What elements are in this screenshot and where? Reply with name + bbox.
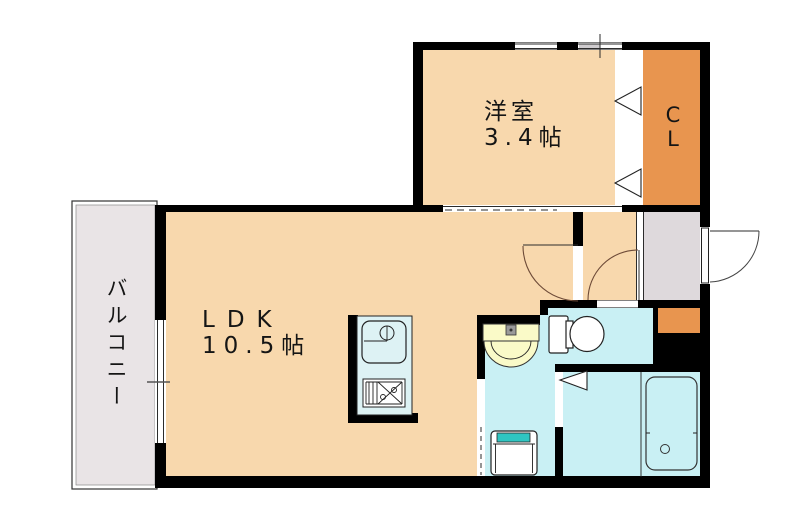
south-wall xyxy=(155,476,710,488)
entrance-door-panel xyxy=(702,228,709,283)
floorplan: 洋室 3.4帖 LDK 10.5帖 C L バルコニー xyxy=(0,0,800,528)
entrance-floor xyxy=(640,212,703,307)
washing-machine-pan-icon xyxy=(491,431,537,475)
ldk-name: LDK xyxy=(202,307,311,333)
toilet-door-opening xyxy=(597,301,638,308)
gas-stove-icon xyxy=(363,379,405,407)
north-wall xyxy=(413,42,710,50)
shoe-cabinet xyxy=(658,308,700,333)
hallway-wall-segment xyxy=(573,212,583,246)
floorplan-drawing xyxy=(0,0,800,528)
ldk-door-opening xyxy=(573,246,583,300)
mid-wall xyxy=(155,205,710,212)
western-room-size: 3.4帖 xyxy=(484,125,568,151)
ldk-size: 10.5帖 xyxy=(202,333,311,359)
western-room-left-wall xyxy=(413,42,423,212)
balcony-label: バルコニー xyxy=(103,277,129,417)
closet-label: C L xyxy=(661,103,685,151)
western-room-label: 洋室 3.4帖 xyxy=(484,99,568,151)
hallway-floor xyxy=(576,212,640,303)
ldk-label: LDK 10.5帖 xyxy=(202,307,311,359)
toilet-icon xyxy=(549,316,604,353)
entrance-door-arc xyxy=(710,231,759,282)
western-room-name: 洋室 xyxy=(484,99,568,125)
entrance-step-strip xyxy=(636,212,644,303)
